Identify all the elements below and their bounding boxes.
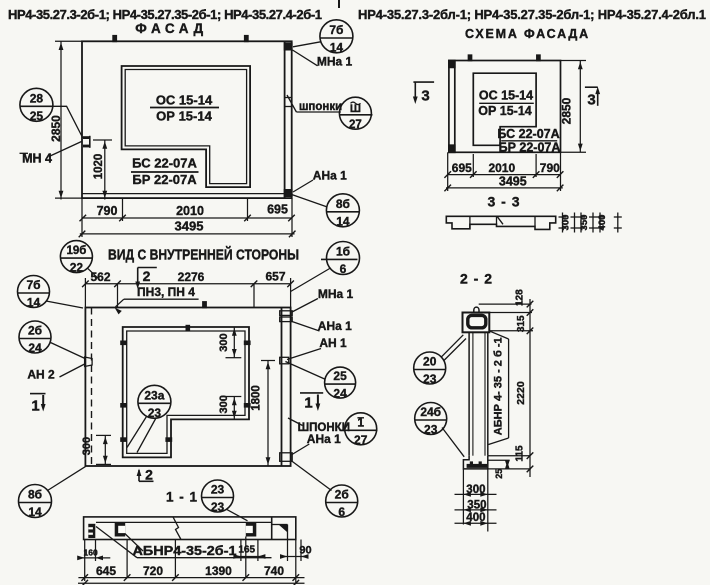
svg-text:160: 160 xyxy=(84,548,98,558)
svg-text:740: 740 xyxy=(264,564,284,578)
svg-text:2: 2 xyxy=(143,268,151,284)
svg-text:790: 790 xyxy=(97,204,118,218)
svg-text:14: 14 xyxy=(28,505,42,519)
svg-text:АБНР 4- 35 - 2 б -1: АБНР 4- 35 - 2 б -1 xyxy=(492,337,504,435)
svg-text:300: 300 xyxy=(81,437,93,455)
svg-text:АНа 1: АНа 1 xyxy=(307,432,341,446)
svg-text:23: 23 xyxy=(211,500,225,514)
svg-text:300: 300 xyxy=(218,333,230,351)
svg-text:115: 115 xyxy=(515,445,526,462)
svg-text:БС 22-07А: БС 22-07А xyxy=(132,156,197,171)
svg-text:ОР 15-14: ОР 15-14 xyxy=(156,108,212,123)
svg-text:14: 14 xyxy=(27,296,41,310)
svg-text:2б: 2б xyxy=(335,488,349,502)
svg-text:23: 23 xyxy=(148,406,162,420)
svg-text:1 - 1: 1 - 1 xyxy=(166,490,198,505)
svg-text:23: 23 xyxy=(211,483,225,497)
svg-text:НР4-35.27.3-2б-1; НР4-35.27.35: НР4-35.27.3-2б-1; НР4-35.27.35-2б-1; НР4… xyxy=(8,7,322,22)
svg-text:90: 90 xyxy=(299,545,311,557)
svg-text:1: 1 xyxy=(31,398,39,415)
svg-text:МНа 1: МНа 1 xyxy=(317,55,353,69)
svg-text:6: 6 xyxy=(338,505,345,519)
svg-text:1020: 1020 xyxy=(93,154,105,180)
svg-text:24: 24 xyxy=(333,387,347,401)
svg-text:400: 400 xyxy=(466,512,485,524)
svg-text:23: 23 xyxy=(424,423,438,437)
svg-text:3 - 3: 3 - 3 xyxy=(487,194,520,210)
svg-text:7б: 7б xyxy=(329,23,343,37)
svg-text:300: 300 xyxy=(561,215,572,231)
svg-text:14: 14 xyxy=(330,40,344,54)
svg-text:ОС 15-14: ОС 15-14 xyxy=(479,89,533,103)
svg-text:АБНР4-35-2б-1: АБНР4-35-2б-1 xyxy=(133,544,237,558)
svg-text:ВИД С ВНУТРЕННЕЙ СТОРОНЫ: ВИД С ВНУТРЕННЕЙ СТОРОНЫ xyxy=(108,246,299,264)
svg-text:695: 695 xyxy=(452,161,472,175)
svg-text:3: 3 xyxy=(421,88,429,105)
svg-text:ОС 15-14: ОС 15-14 xyxy=(156,92,213,107)
svg-text:20: 20 xyxy=(423,355,437,369)
svg-text:2: 2 xyxy=(145,467,153,483)
svg-text:МНа 1: МНа 1 xyxy=(318,287,354,301)
svg-text:Ш: Ш xyxy=(350,103,361,115)
svg-text:2б: 2б xyxy=(28,324,42,338)
svg-text:БР 22-07А: БР 22-07А xyxy=(499,140,561,154)
svg-text:ПН3, ПН 4: ПН3, ПН 4 xyxy=(137,285,195,299)
svg-text:АНа 1: АНа 1 xyxy=(318,319,352,333)
svg-text:657: 657 xyxy=(265,270,285,284)
svg-text:шпонки: шпонки xyxy=(299,101,342,113)
svg-text:350: 350 xyxy=(467,499,486,511)
svg-text:165: 165 xyxy=(238,544,255,555)
svg-text:АН 2: АН 2 xyxy=(27,368,55,382)
svg-text:3495: 3495 xyxy=(175,219,204,234)
svg-text:562: 562 xyxy=(90,270,110,284)
svg-text:2 - 2: 2 - 2 xyxy=(460,271,493,287)
svg-text:300: 300 xyxy=(218,395,230,413)
svg-text:25: 25 xyxy=(494,469,504,479)
svg-text:1800: 1800 xyxy=(251,385,263,411)
svg-text:2220: 2220 xyxy=(515,381,527,405)
svg-text:ОР 15-14: ОР 15-14 xyxy=(478,104,532,118)
svg-text:НР4-35.27.3-2бл-1; НР4-35.27.3: НР4-35.27.3-2бл-1; НР4-35.27.35-2бл-1; Н… xyxy=(358,7,706,22)
svg-text:БС 22-07А: БС 22-07А xyxy=(497,127,559,141)
svg-text:3495: 3495 xyxy=(499,175,527,189)
svg-text:23: 23 xyxy=(423,372,437,386)
svg-text:АН 1: АН 1 xyxy=(319,336,347,350)
svg-text:ФАСАД: ФАСАД xyxy=(135,21,207,36)
svg-text:25: 25 xyxy=(30,109,44,123)
svg-text:400: 400 xyxy=(597,215,608,231)
svg-text:25: 25 xyxy=(333,369,347,383)
svg-text:27: 27 xyxy=(349,119,362,131)
svg-text:790: 790 xyxy=(540,161,560,175)
svg-text:1390: 1390 xyxy=(205,564,232,578)
svg-text:МН 4: МН 4 xyxy=(22,152,52,166)
svg-text:2850: 2850 xyxy=(49,115,63,142)
svg-text:2010: 2010 xyxy=(176,204,204,218)
svg-text:720: 720 xyxy=(143,564,163,578)
svg-text:8б: 8б xyxy=(28,488,42,502)
svg-text:645: 645 xyxy=(96,564,116,578)
svg-text:128: 128 xyxy=(514,289,525,306)
svg-text:СХЕМА ФАСАДА: СХЕМА ФАСАДА xyxy=(465,27,590,41)
svg-text:300: 300 xyxy=(466,484,485,496)
svg-text:АНа 1: АНа 1 xyxy=(313,169,347,183)
svg-text:22: 22 xyxy=(70,261,84,275)
svg-text:27: 27 xyxy=(354,433,368,447)
svg-text:23а: 23а xyxy=(144,388,164,402)
svg-text:3: 3 xyxy=(587,92,595,109)
svg-text:2850: 2850 xyxy=(560,97,574,124)
svg-text:2276: 2276 xyxy=(178,270,205,284)
svg-text:24: 24 xyxy=(28,341,42,355)
svg-text:7б: 7б xyxy=(26,278,40,292)
svg-text:1б: 1б xyxy=(336,245,350,259)
svg-text:19б: 19б xyxy=(66,245,86,257)
svg-text:695: 695 xyxy=(267,203,288,217)
svg-text:1: 1 xyxy=(304,395,312,412)
svg-text:14: 14 xyxy=(336,214,350,228)
svg-text:6: 6 xyxy=(340,262,347,276)
svg-text:24б: 24б xyxy=(420,405,441,419)
svg-text:350: 350 xyxy=(579,215,590,231)
svg-text:8б: 8б xyxy=(336,197,350,211)
svg-text:БР 22-07А: БР 22-07А xyxy=(132,172,197,187)
svg-text:28: 28 xyxy=(30,91,44,105)
svg-text:315: 315 xyxy=(516,315,527,332)
svg-text:2010: 2010 xyxy=(488,161,515,175)
